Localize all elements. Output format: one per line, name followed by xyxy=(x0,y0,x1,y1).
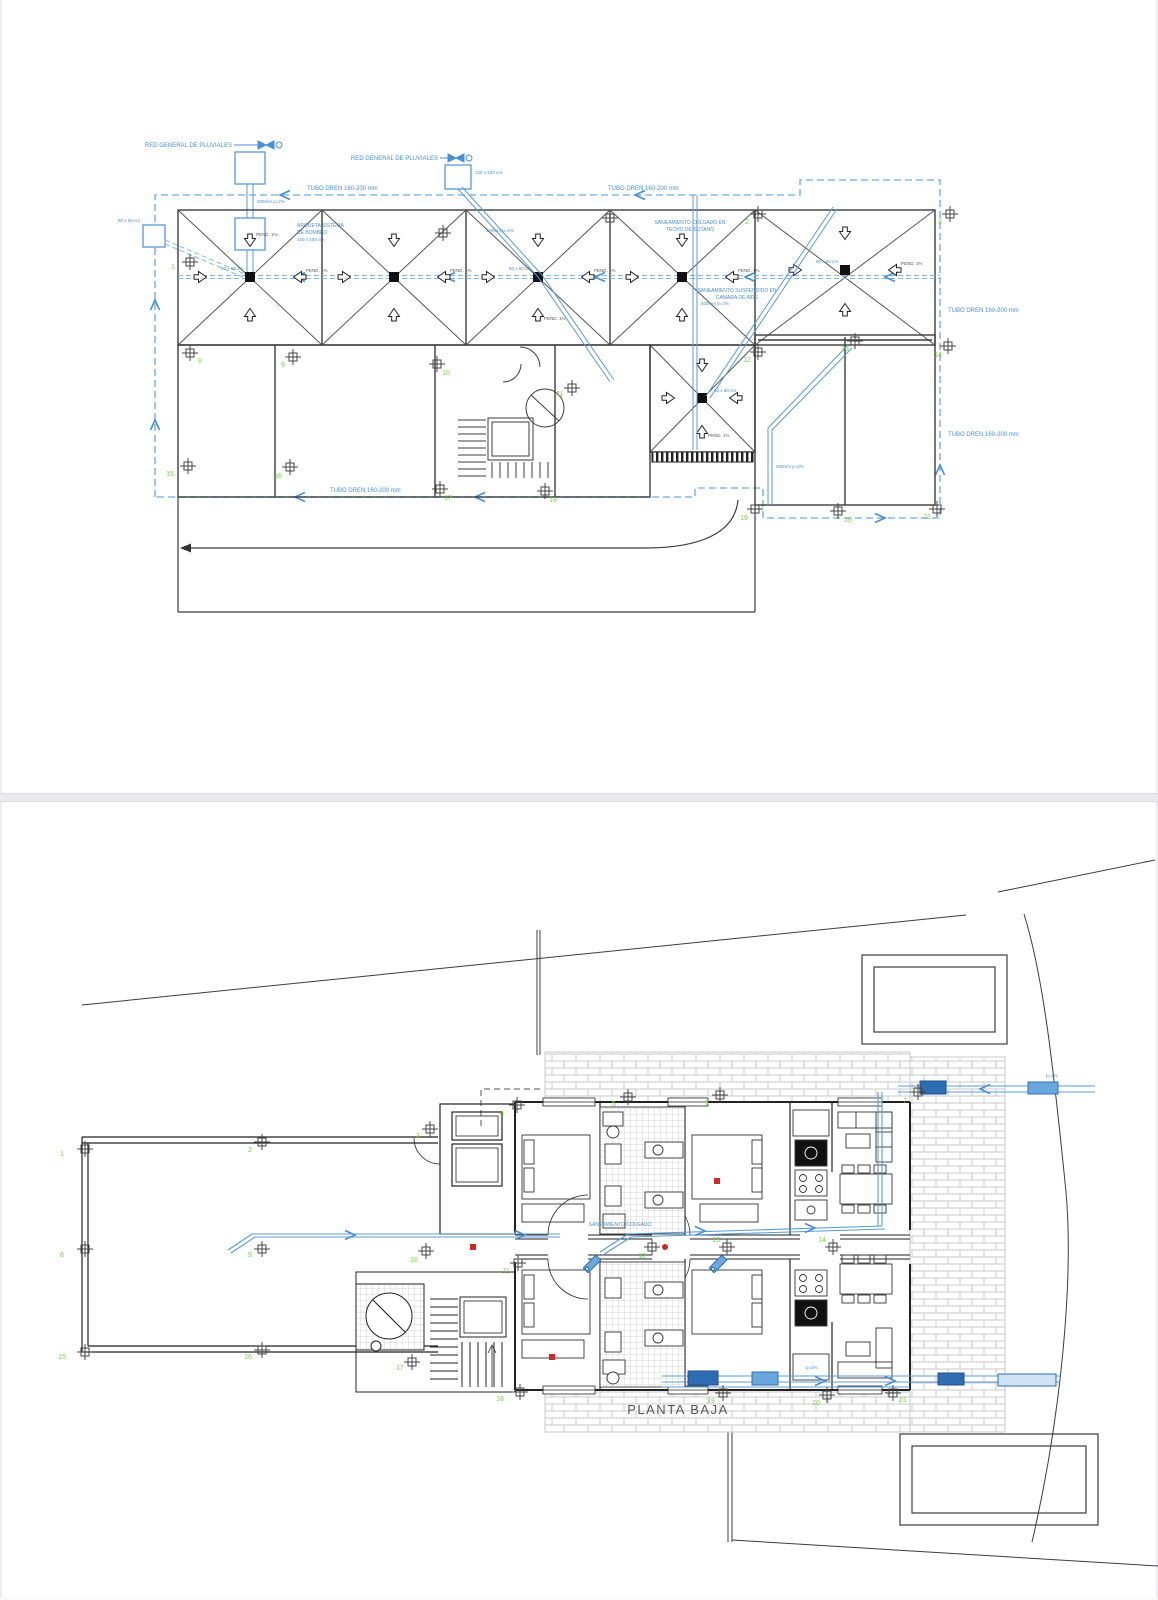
svg-text:PEND. 1%: PEND. 1% xyxy=(901,261,923,266)
pluvial-connection-1: RED GENERAL DE PLUVIALES 200mm p=2% ARQU… xyxy=(145,141,345,277)
roof-band xyxy=(178,210,935,345)
roof-plan-drawing: TUBO DREN 160-200 mm TUBO DREN 160-200 m… xyxy=(0,0,1158,793)
svg-text:20: 20 xyxy=(812,1400,820,1407)
tubo-dren-label-top-left: TUBO DREN 160-200 mm xyxy=(307,186,378,192)
stair-core-roof xyxy=(458,347,564,478)
svg-text:9: 9 xyxy=(281,362,285,369)
svg-text:21: 21 xyxy=(923,514,931,521)
arqueta-label-3: 100 x 100 cm xyxy=(297,237,324,242)
plan-title: PLANTA BAJA xyxy=(627,1402,729,1417)
svg-text:14: 14 xyxy=(934,352,942,359)
roof-collector xyxy=(178,265,940,403)
pipe-spec-2: 200mm p=2% xyxy=(486,228,514,233)
pool-bottom xyxy=(900,1434,1098,1525)
saneamiento-suspendido-1: SANEAMIENTO SUSPENDIDO EN xyxy=(697,288,776,294)
saneamiento-colgado-1: SANEAMIENTO COLGADO EN xyxy=(654,220,725,226)
drain-size-1: 60 x 60 cm xyxy=(221,266,243,271)
svg-text:PEND. 1%: PEND. 1% xyxy=(594,268,616,273)
tubo-dren-label-right-2: TUBO DREN 160-200 mm xyxy=(948,432,1019,438)
svg-text:8: 8 xyxy=(60,1252,64,1259)
pipe-spec-3: 200mm p=2% xyxy=(701,301,729,306)
svg-text:10: 10 xyxy=(442,370,450,377)
svg-text:2: 2 xyxy=(745,219,749,226)
svg-text:2: 2 xyxy=(248,1147,252,1154)
svg-text:16: 16 xyxy=(244,1354,252,1361)
pipe-spec-1: 200mm p=2% xyxy=(257,199,285,204)
svg-text:PEND. 1%: PEND. 1% xyxy=(544,316,566,321)
drain-size-4: 60 x 60 cm xyxy=(714,388,736,393)
tubo-dren-label-bottom: TUBO DREN 160-200 mm xyxy=(330,488,401,494)
pluvial-connection-2: RED GENERAL DE PLUVIALES 100 x 100 cm xyxy=(351,154,502,189)
svg-text:15: 15 xyxy=(166,471,174,478)
svg-text:PEND. 1%: PEND. 1% xyxy=(708,433,730,438)
svg-text:12: 12 xyxy=(638,1253,646,1260)
saneamiento-colgado-label: SANEAMIENTO COLGADO xyxy=(589,1222,652,1228)
ground-floor-drawing: SANEAMIENTO COLGADO p=2% p=2% xyxy=(0,802,1158,1597)
svg-text:16: 16 xyxy=(274,473,282,480)
svg-text:1: 1 xyxy=(60,1151,64,1158)
svg-text:8: 8 xyxy=(198,358,202,365)
windows xyxy=(543,1098,882,1394)
ramp-arrow xyxy=(180,544,191,553)
svg-text:PEND. 1%: PEND. 1% xyxy=(306,268,328,273)
riser-box-2 xyxy=(445,165,471,189)
svg-text:11: 11 xyxy=(502,1268,509,1275)
terrace-band xyxy=(178,345,755,497)
red-general-label-1: RED GENERAL DE PLUVIALES xyxy=(145,143,232,149)
svg-text:4: 4 xyxy=(500,1111,504,1118)
driveway xyxy=(178,497,755,612)
svg-text:21: 21 xyxy=(899,1397,907,1404)
lower-unit xyxy=(522,1255,892,1387)
arqueta3-size-label: 50 x 50 cm xyxy=(118,218,140,223)
svg-text:PEND. 1%: PEND. 1% xyxy=(450,268,472,273)
riser-box-1 xyxy=(235,152,265,184)
svg-text:13: 13 xyxy=(712,1237,720,1244)
corridor xyxy=(515,1195,910,1299)
svg-text:18: 18 xyxy=(549,497,557,504)
svg-text:PEND. 1%: PEND. 1% xyxy=(256,232,278,237)
pipe-spec-4: 200mm p=2% xyxy=(776,464,804,469)
svg-text:10: 10 xyxy=(410,1257,418,1264)
svg-text:20: 20 xyxy=(844,517,852,524)
svg-text:17: 17 xyxy=(396,1365,404,1372)
tubo-dren-label-top-right: TUBO DREN 160-200 mm xyxy=(608,186,679,192)
svg-text:14: 14 xyxy=(818,1237,826,1244)
svg-text:1: 1 xyxy=(171,264,175,271)
arqueta2-size-label: 100 x 100 cm xyxy=(475,170,502,175)
svg-text:18: 18 xyxy=(496,1396,504,1403)
svg-text:3: 3 xyxy=(938,219,942,226)
svg-text:9: 9 xyxy=(248,1252,252,1259)
tubo-dren-label-right-1: TUBO DREN 160-200 mm xyxy=(948,308,1019,314)
page-divider xyxy=(0,793,1158,802)
svg-text:11: 11 xyxy=(556,391,563,398)
svg-text:13: 13 xyxy=(841,346,849,353)
bottom-pipe-spec: p=2% xyxy=(806,1365,818,1370)
svg-text:5: 5 xyxy=(612,1101,616,1108)
svg-text:12: 12 xyxy=(743,357,751,364)
ground-floor-page: SANEAMIENTO COLGADO p=2% p=2% xyxy=(0,802,1158,1597)
saneamiento-colgado-2: TECHO DE SOTANO xyxy=(666,227,714,233)
upper-unit xyxy=(522,1107,892,1234)
porch-pipe xyxy=(228,1092,885,1255)
pool-top xyxy=(862,955,1007,1044)
top-pipe-spec: p=2% xyxy=(1046,1073,1058,1078)
roof-plan-page: TUBO DREN 160-200 mm TUBO DREN 160-200 m… xyxy=(0,0,1158,793)
drain-size-2: 60 x 60 cm xyxy=(509,266,531,271)
spa xyxy=(356,1284,424,1351)
red-general-label-2: RED GENERAL DE PLUVIALES xyxy=(351,156,438,162)
roof-column-markers xyxy=(180,206,958,519)
setback-dashed-line xyxy=(481,1089,540,1129)
building-shell xyxy=(515,1102,910,1390)
svg-text:15: 15 xyxy=(58,1354,66,1361)
svg-text:3: 3 xyxy=(416,1133,420,1140)
arqueta-label-2: DE BOMBEO xyxy=(297,230,327,236)
svg-text:6: 6 xyxy=(705,1100,709,1107)
svg-text:19: 19 xyxy=(740,515,748,522)
svg-text:17: 17 xyxy=(444,495,452,502)
drain-size-3: 60 x 60 cm xyxy=(816,259,838,264)
svg-text:PEND. 1%: PEND. 1% xyxy=(738,268,760,273)
svg-text:7: 7 xyxy=(903,1098,907,1105)
entry-module xyxy=(414,1104,515,1234)
roof-grate xyxy=(652,452,753,462)
roof-hips xyxy=(178,210,935,452)
roof-column-numbers: 1 2 3 8 9 10 11 12 13 14 15 16 17 18 19 … xyxy=(166,219,942,524)
